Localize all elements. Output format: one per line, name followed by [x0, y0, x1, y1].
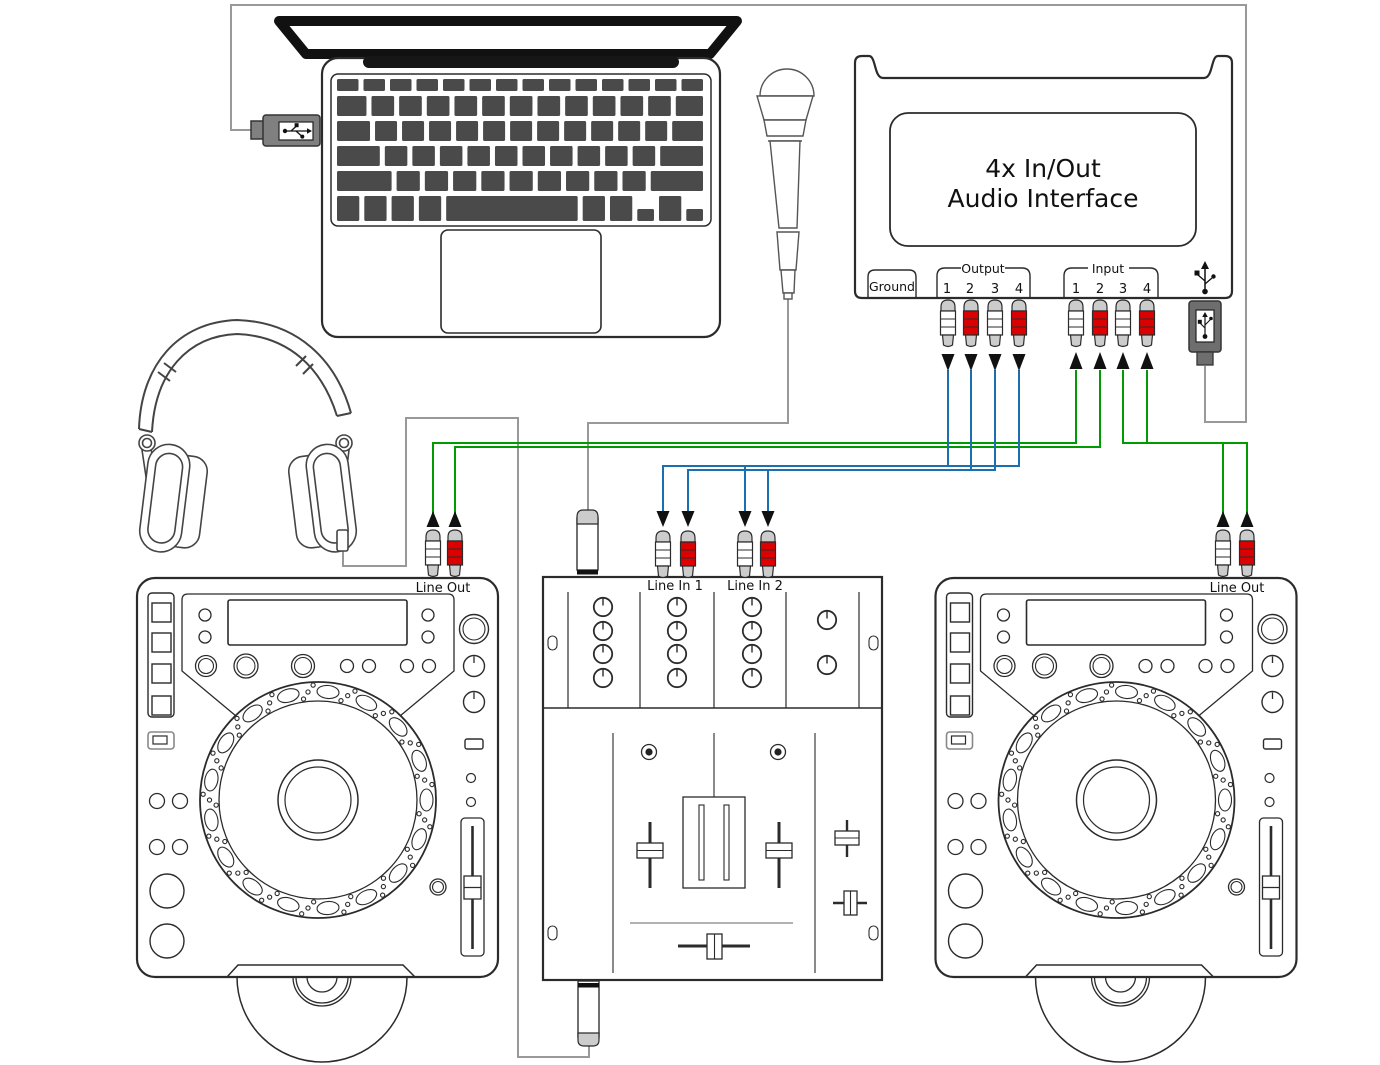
input-port-label: 2 — [1096, 282, 1104, 297]
input-port-label: 3 — [1119, 282, 1127, 297]
rca-white — [1216, 530, 1231, 577]
output-port-label: 1 — [943, 282, 951, 297]
cdj-deck-right — [936, 578, 1297, 1062]
rca-red — [1240, 530, 1255, 577]
green-cable-right-2 — [1147, 370, 1247, 513]
line-in-1-label: Line In 1 — [647, 579, 703, 594]
mic-connector — [784, 293, 792, 299]
input-port-label: 1 — [1072, 282, 1080, 297]
phones-jack-plug — [578, 981, 599, 1046]
ear-cup-left — [137, 442, 210, 557]
interface-title-line2: Audio Interface — [948, 184, 1139, 213]
input-group-label: Input — [1092, 261, 1124, 276]
rca-connectors — [426, 300, 1255, 578]
rca-red — [448, 530, 463, 577]
output-port-label: 4 — [1015, 282, 1023, 297]
mixer-body — [543, 577, 882, 980]
dj-mixer: Line In 1 Line In 2 — [543, 510, 882, 1046]
headband-inner — [152, 334, 337, 432]
microphone — [757, 69, 814, 299]
output-port-label: 2 — [966, 282, 974, 297]
blue-cable-1 — [663, 370, 1019, 513]
mic-head — [760, 69, 814, 96]
rca-red — [964, 300, 979, 347]
rca-red — [1140, 300, 1155, 347]
laptop — [251, 21, 737, 337]
rca-white — [738, 531, 753, 578]
ground-label: Ground — [869, 279, 915, 294]
line-in-2-label: Line In 2 — [727, 579, 783, 594]
mic-body — [770, 141, 800, 228]
rca-white — [656, 531, 671, 578]
usb-plug-tail — [251, 121, 264, 139]
interface-title-line1: 4x In/Out — [985, 154, 1101, 183]
laptop-hinge — [363, 56, 679, 68]
rca-white — [988, 300, 1003, 347]
green-cable-left-1 — [433, 370, 1076, 513]
headphones — [137, 320, 358, 557]
rca-white — [941, 300, 956, 347]
green-cable-right-1 — [1123, 370, 1223, 513]
flow-arrows — [427, 352, 1254, 527]
laptop-lid — [279, 21, 737, 54]
input-port-label: 4 — [1143, 282, 1151, 297]
output-port-label: 3 — [991, 282, 999, 297]
cue-select-dot — [645, 748, 652, 755]
rca-red — [1012, 300, 1027, 347]
cdj-deck-left — [137, 578, 498, 1062]
output-group-label: Output — [961, 261, 1005, 276]
mic-jack-plug — [577, 510, 598, 575]
usb-plug-interface — [1189, 301, 1221, 365]
rca-white — [426, 530, 441, 577]
line-out-label-left: Line Out — [416, 581, 471, 596]
dj-setup-diagram: 4x In/Out Audio Interface Ground Output … — [0, 0, 1380, 1065]
cue-select-dot — [774, 748, 781, 755]
rca-red — [1093, 300, 1108, 347]
usb-icon — [279, 122, 313, 140]
headband-outer — [139, 320, 351, 429]
rca-red — [681, 531, 696, 578]
line-out-label-right: Line Out — [1210, 581, 1265, 596]
audio-interface: 4x In/Out Audio Interface Ground Output … — [855, 56, 1232, 365]
headphone-cable-connector — [337, 530, 348, 551]
rca-red — [761, 531, 776, 578]
rca-white — [1069, 300, 1084, 347]
rca-white — [1116, 300, 1131, 347]
